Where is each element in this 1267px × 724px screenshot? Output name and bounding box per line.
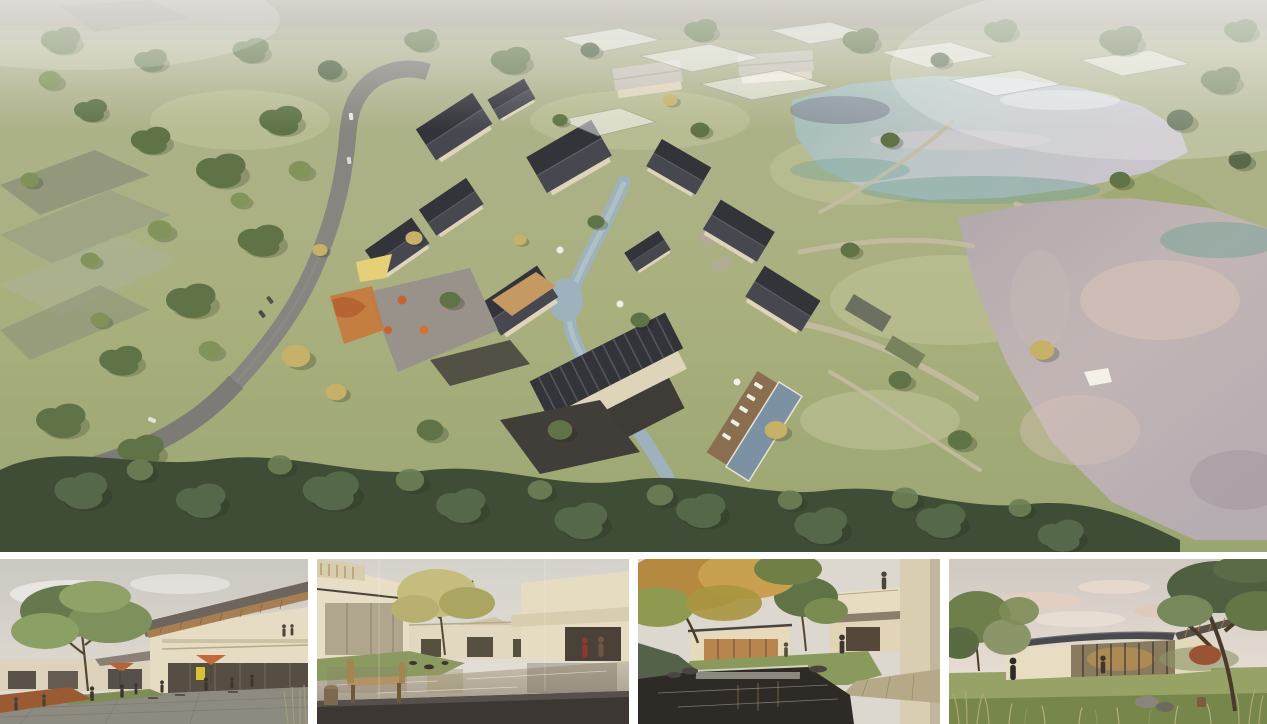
- waterfall-garden-courtyard-render: [638, 559, 940, 724]
- right-house: [511, 571, 629, 663]
- reflecting-pond-courtyard-render: [317, 559, 629, 724]
- lakeside-pavilion-render: [949, 559, 1267, 724]
- presentation-board: [0, 0, 1267, 724]
- red-maple: [1189, 645, 1221, 665]
- person: [1010, 658, 1017, 680]
- shop-sign: [196, 667, 205, 680]
- street-scene-render: [0, 559, 308, 724]
- aerial-masterplan-render: [0, 0, 1267, 552]
